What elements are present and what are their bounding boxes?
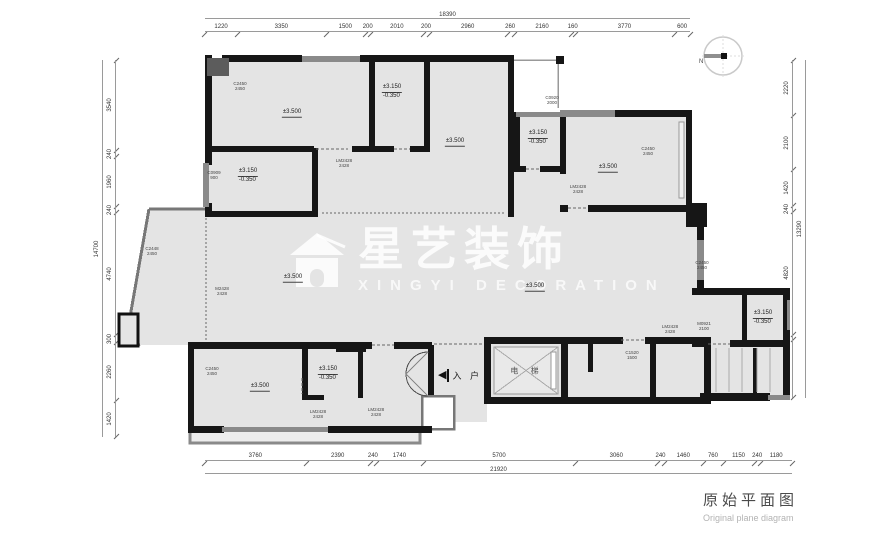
door-window-code: C1520 1500 (625, 351, 638, 361)
door-window-code: LM2428 2428 (570, 185, 586, 195)
door-window-code: C2448 2450 (145, 247, 158, 257)
door-window-code: M0921 2100 (697, 322, 711, 332)
level-annotation: ±3.500 (283, 274, 303, 283)
door-window-code: LM2428 2428 (310, 410, 326, 420)
window-strip (679, 122, 684, 198)
door-window-code: C0920 2000 (545, 96, 558, 106)
level-annotation: ±3.500 (282, 109, 302, 118)
entry-text: 入 户 (452, 369, 482, 382)
level-annotation: ±3.150-0.350 (528, 130, 548, 146)
entry-label: ◀ 入 户 (438, 369, 482, 382)
level-annotation: ±3.150-0.350 (753, 310, 773, 326)
door-window-code: C2450 2450 (233, 82, 246, 92)
sheet-title-cn: 原始平面图 (703, 489, 798, 510)
title-block: 原始平面图 Original plane diagram (703, 489, 798, 523)
door-window-code: LM2428 2428 (336, 159, 352, 169)
floor-plan-sheet: 星艺装饰 XINGYI DECORATION ±3.500±3.500±3.50… (0, 0, 877, 540)
floor-plan-drawing (0, 0, 877, 540)
door-window-code: LM2428 2428 (368, 408, 384, 418)
entry-arrow-icon: ◀ (438, 370, 446, 381)
door-window-code: C2450 2450 (641, 147, 654, 157)
level-annotation: ±3.500 (525, 283, 545, 292)
level-annotation: ±3.500 (445, 138, 465, 147)
door-window-code: M2428 2428 (215, 287, 229, 297)
door-window-code: LM2428 2428 (662, 325, 678, 335)
elevator-label: 电 梯 (510, 366, 543, 377)
level-annotation: ±3.500 (250, 383, 270, 392)
level-annotation: ±3.500 (598, 164, 618, 173)
door-window-code: C2450 2450 (695, 261, 708, 271)
door-window-code: C2450 2450 (205, 367, 218, 377)
level-annotation: ±3.150-0.350 (318, 366, 338, 382)
entry-arrow-bar (447, 369, 449, 382)
door-window-code: C0909 900 (207, 171, 220, 181)
level-annotation: ±3.150-0.350 (382, 84, 402, 100)
level-annotation: ±3.150-0.350 (238, 168, 258, 184)
sheet-title-en: Original plane diagram (703, 513, 798, 523)
